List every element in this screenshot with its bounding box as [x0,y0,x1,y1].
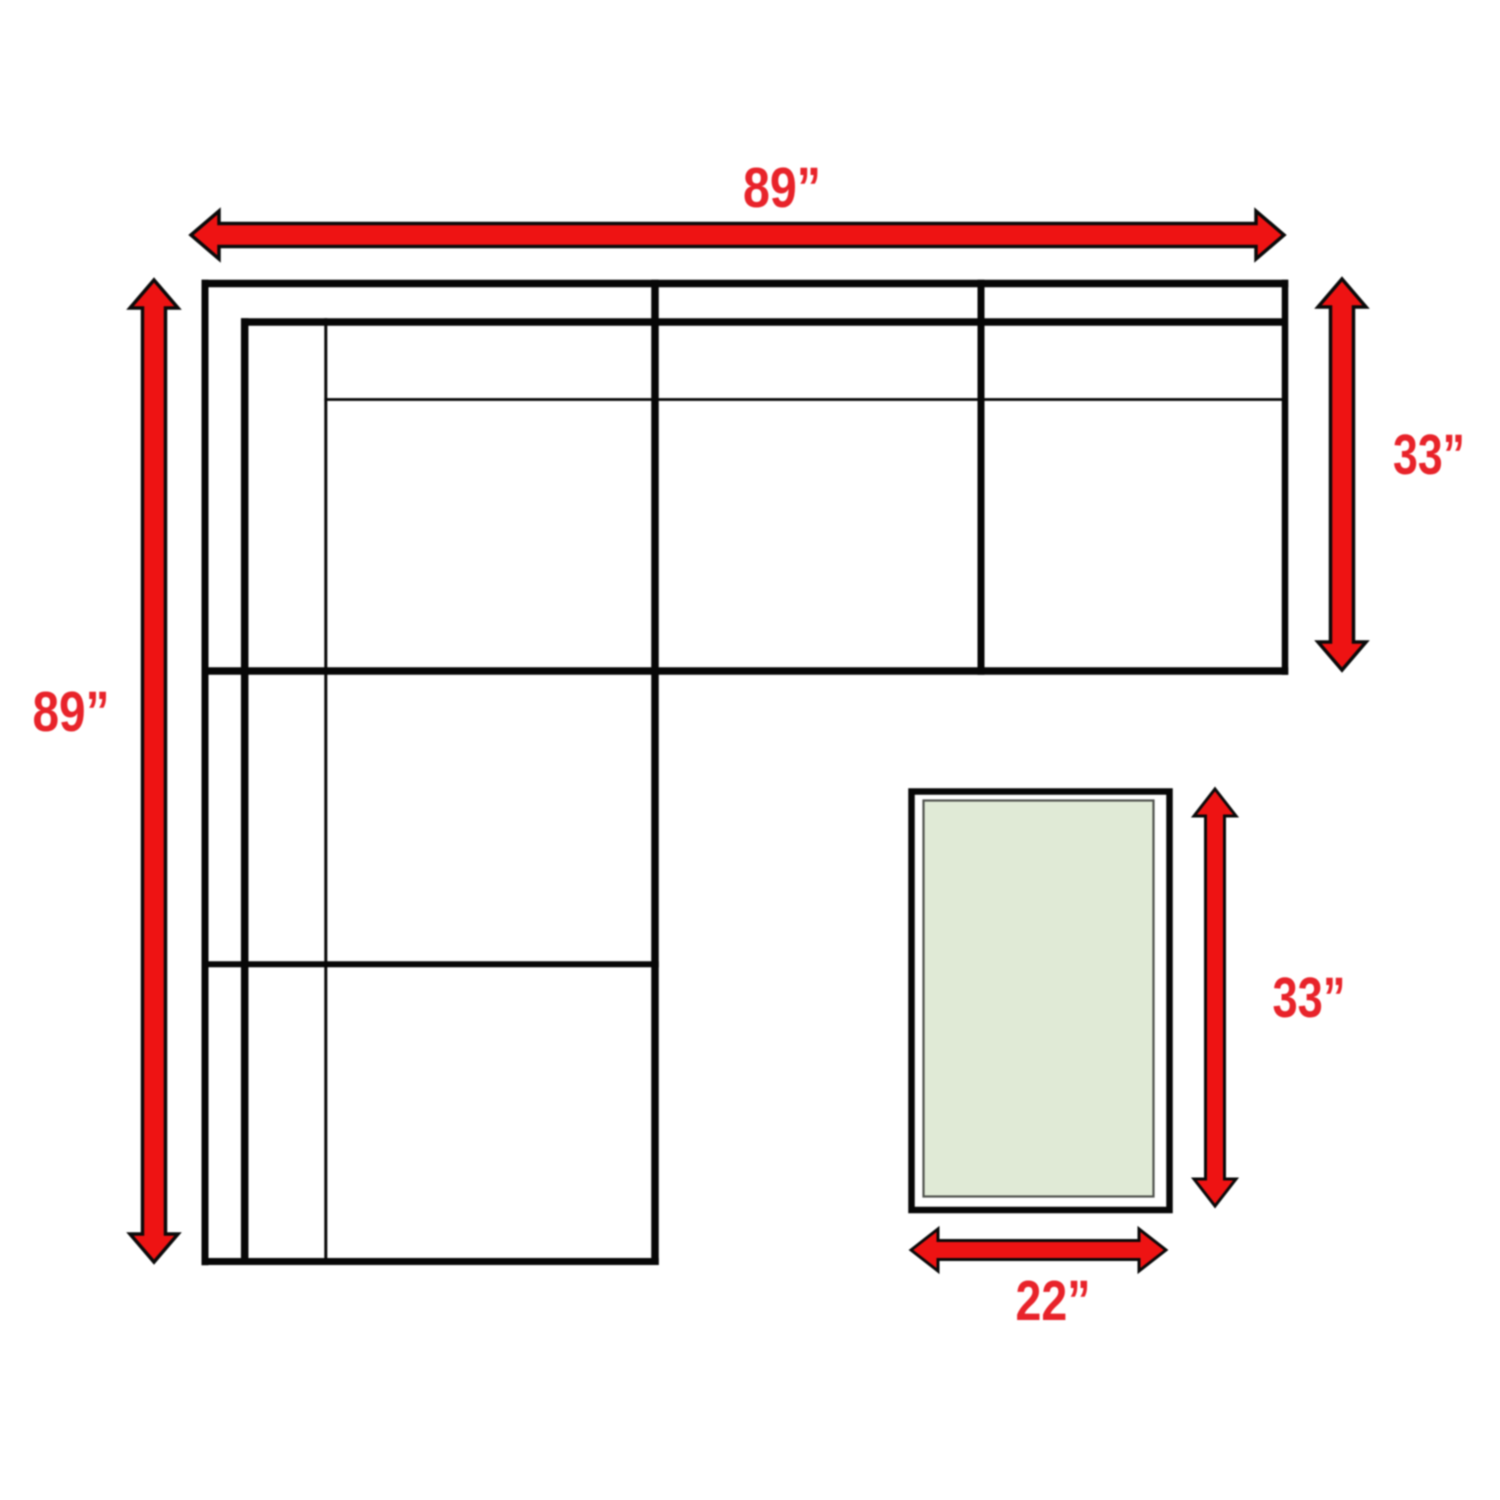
svg-text:89”: 89” [743,156,821,220]
svg-text:33”: 33” [1393,423,1465,487]
svg-text:89”: 89” [33,680,110,744]
svg-text:22”: 22” [1016,1269,1091,1333]
svg-text:33”: 33” [1273,966,1346,1030]
